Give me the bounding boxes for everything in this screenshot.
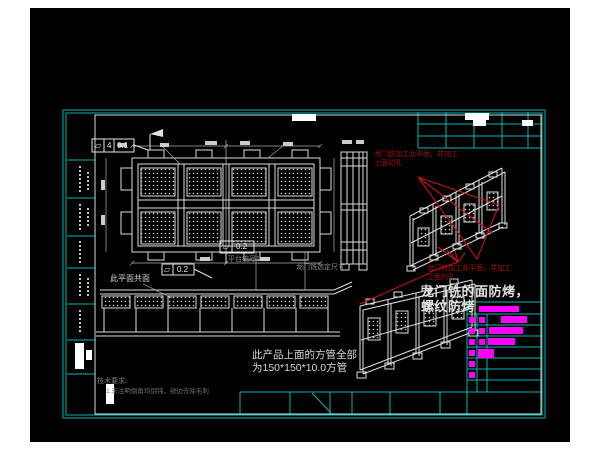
flatness-zones-top: 4	[107, 142, 111, 150]
flatness-symbol-mid: ⏥	[164, 266, 170, 274]
red-note-top-line1: 龙门铣加工此平面，并加工	[374, 151, 458, 160]
face-note-line2: 螺纹防烤	[421, 299, 475, 315]
flatness-value-mid: 0.2	[177, 266, 188, 274]
tube-note-line1: 此产品上面的方管全部	[252, 349, 357, 362]
flatness-value-top: 0.1	[117, 142, 128, 150]
gantry-size-note: 龙门铣选定尺寸	[296, 264, 345, 273]
red-note-bottom-line1: 龙门铣加工此平面，并加工	[427, 265, 511, 274]
platform-number-note: 平台编号1	[228, 256, 260, 265]
flatness-value-bottom: 0.2	[236, 243, 247, 251]
tube-note-line2: 为150*150*10.0方管	[252, 362, 347, 375]
red-note-bottom-line2: 上面的孔	[427, 274, 455, 283]
tech-requirements-item1: 1.未注明倒角均倒钝，锐边去除毛刺	[106, 388, 209, 396]
cad-screenshot: ⏥ 4 0.1 ⏥ 0.2 ⏥ 0.2 此平面共面 平台编号1 龙门铣选定尺寸 …	[0, 0, 600, 450]
coplanar-note: 此平面共面	[110, 274, 150, 284]
flatness-symbol-bottom: ⏥	[223, 243, 229, 251]
flatness-symbol-top: ⏥	[95, 142, 101, 150]
drawing-canvas[interactable]	[30, 8, 570, 442]
tech-requirements-title: 技术要求:	[97, 378, 127, 387]
face-note-line1: 龙门铣的面防烤，	[421, 284, 529, 300]
red-note-top-line2: 上面的孔	[374, 160, 402, 169]
